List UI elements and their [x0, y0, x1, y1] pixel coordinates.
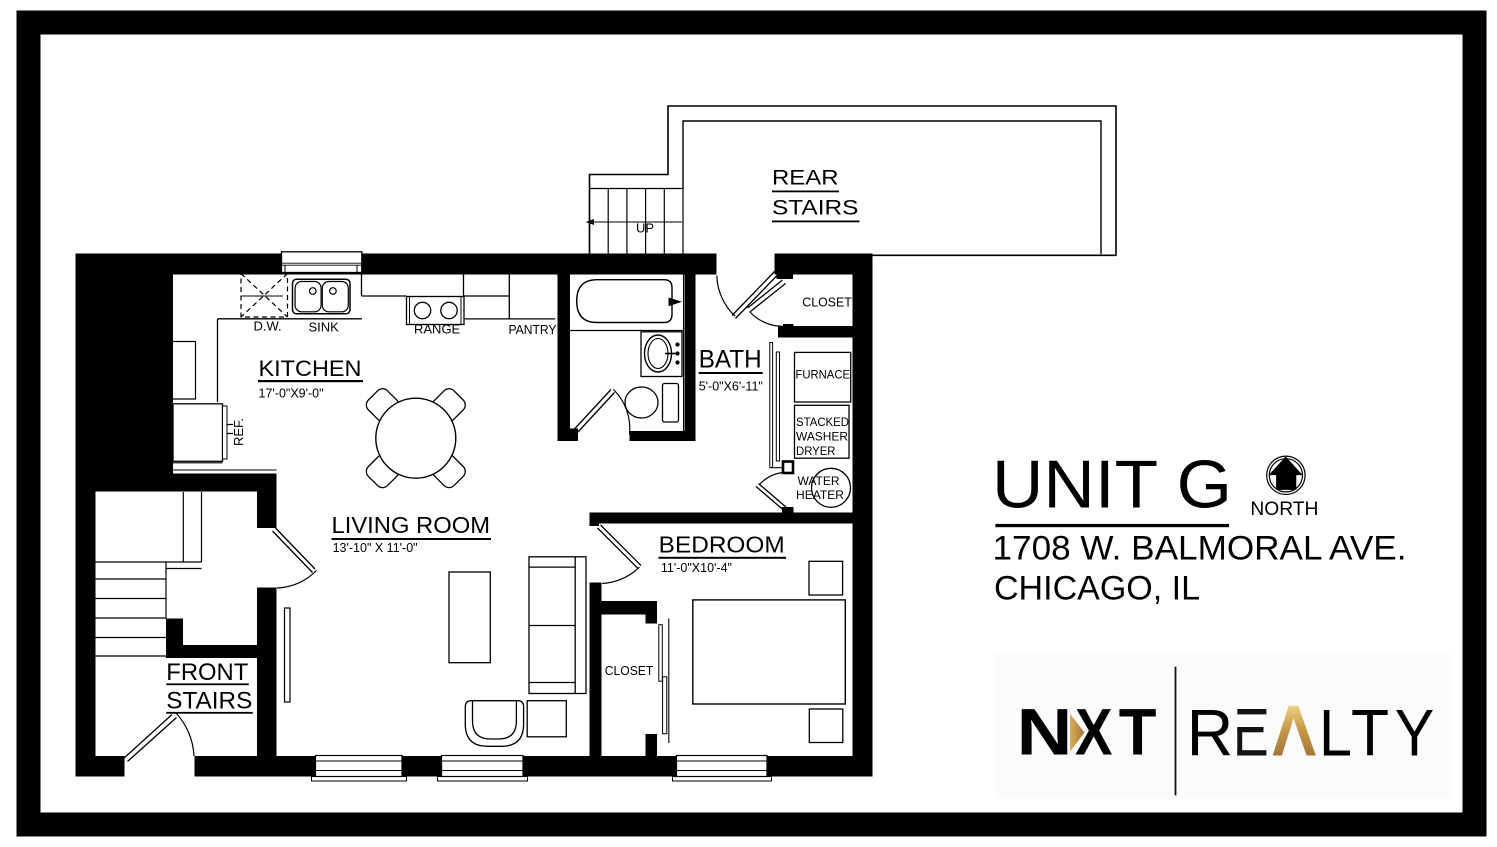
svg-text:D.W.: D.W. [254, 319, 282, 334]
svg-text:BEDROOM: BEDROOM [659, 532, 785, 558]
svg-text:SINK: SINK [309, 320, 340, 335]
svg-text:Y: Y [1395, 695, 1435, 769]
svg-text:CLOSET: CLOSET [802, 296, 852, 310]
svg-text:13'-10" X 11'-0": 13'-10" X 11'-0" [333, 541, 418, 555]
svg-text:REAR: REAR [772, 166, 839, 190]
svg-text:BATH: BATH [699, 345, 762, 373]
svg-text:N: N [1017, 695, 1073, 769]
svg-text:T: T [1351, 695, 1389, 769]
svg-text:1708 W. BALMORAL AVE.: 1708 W. BALMORAL AVE. [993, 529, 1407, 567]
svg-text:L: L [1319, 695, 1352, 769]
svg-text:T: T [1119, 695, 1157, 769]
svg-text:17'-0"X9'-0": 17'-0"X9'-0" [259, 387, 324, 401]
svg-text:5'-0"X6'-11": 5'-0"X6'-11" [699, 379, 763, 393]
svg-text:R: R [1187, 695, 1234, 769]
svg-text:FRONT: FRONT [166, 659, 248, 686]
svg-text:WATER: WATER [798, 474, 840, 488]
svg-text:11'-0"X10'-4": 11'-0"X10'-4" [661, 561, 732, 575]
svg-text:REF.: REF. [231, 418, 246, 446]
svg-text:STAIRS: STAIRS [772, 196, 859, 220]
svg-text:DRYER: DRYER [796, 444, 836, 458]
svg-text:PANTRY: PANTRY [509, 322, 557, 337]
svg-text:STAIRS: STAIRS [166, 688, 252, 715]
svg-text:UP: UP [636, 221, 654, 236]
svg-text:CHICAGO, IL: CHICAGO, IL [994, 569, 1200, 607]
svg-text:WASHER: WASHER [796, 429, 848, 443]
svg-text:FURNACE: FURNACE [796, 368, 851, 382]
svg-text:LIVING ROOM: LIVING ROOM [332, 512, 491, 538]
svg-text:KITCHEN: KITCHEN [259, 356, 362, 381]
svg-text:RANGE: RANGE [414, 322, 461, 337]
svg-text:UNIT G: UNIT G [992, 446, 1232, 522]
svg-text:NORTH: NORTH [1250, 499, 1318, 520]
svg-text:CLOSET: CLOSET [605, 664, 654, 678]
svg-text:STACKED: STACKED [796, 415, 849, 429]
svg-text:HEATER: HEATER [796, 488, 844, 502]
